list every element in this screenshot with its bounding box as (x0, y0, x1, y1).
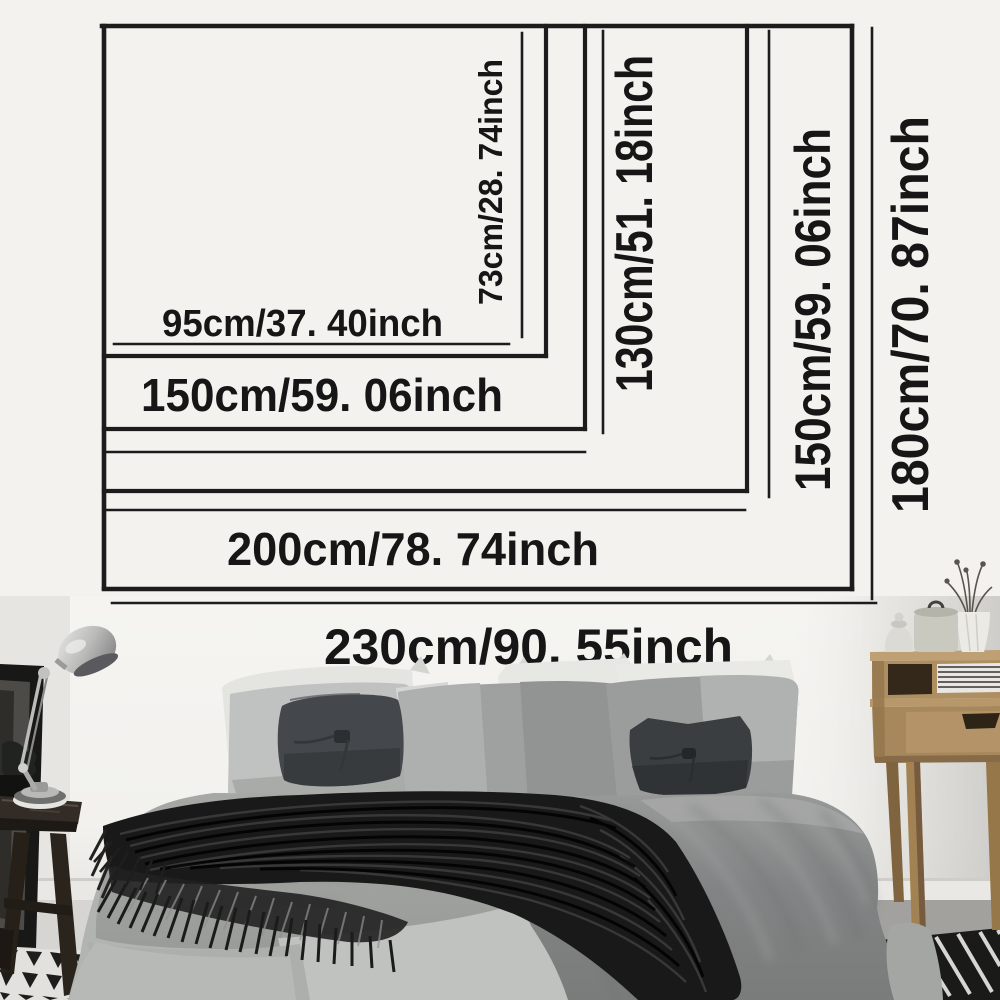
svg-text:180cm/70. 87inch: 180cm/70. 87inch (882, 116, 940, 513)
svg-text:150cm/59. 06inch: 150cm/59. 06inch (785, 128, 841, 491)
svg-text:95cm/37. 40inch: 95cm/37. 40inch (162, 303, 443, 345)
svg-text:73cm/28. 74inch: 73cm/28. 74inch (472, 59, 509, 305)
svg-text:200cm/78. 74inch: 200cm/78. 74inch (227, 523, 599, 575)
svg-text:150cm/59. 06inch: 150cm/59. 06inch (141, 369, 503, 421)
svg-text:130cm/51. 18inch: 130cm/51. 18inch (606, 55, 664, 392)
